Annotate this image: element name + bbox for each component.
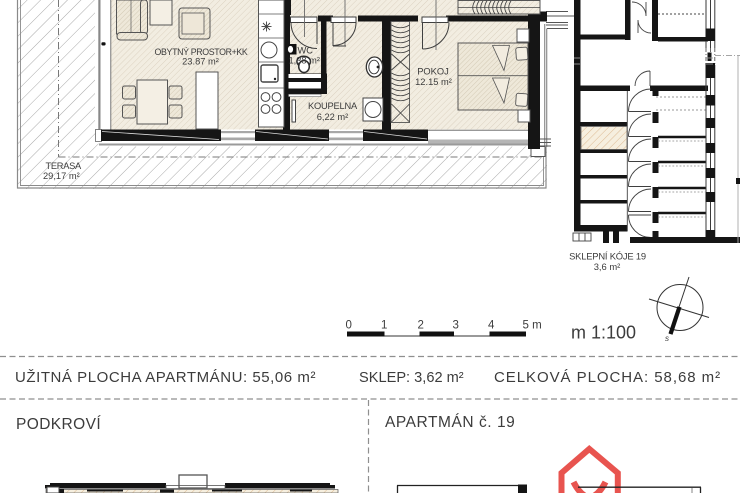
svg-text:POKOJ: POKOJ <box>417 67 449 77</box>
svg-text:4: 4 <box>488 320 495 332</box>
svg-text:s: s <box>665 334 669 343</box>
svg-text:1: 1 <box>381 320 387 332</box>
svg-text:1,38 m²: 1,38 m² <box>289 55 321 65</box>
svg-text:6,22 m²: 6,22 m² <box>317 112 349 122</box>
svg-text:3,6 m²: 3,6 m² <box>594 261 621 272</box>
svg-text:23.87 m²: 23.87 m² <box>182 57 219 67</box>
svg-text:m 1:100: m 1:100 <box>571 323 636 343</box>
svg-text:CELKOVÁ PLOCHA: 58,68 m²: CELKOVÁ PLOCHA: 58,68 m² <box>494 369 721 386</box>
svg-text:2: 2 <box>418 320 424 332</box>
svg-text:29,17 m²: 29,17 m² <box>43 171 80 181</box>
svg-text:3: 3 <box>453 320 459 332</box>
svg-text:WC: WC <box>298 45 314 55</box>
svg-text:SKLEPNÍ KÓJE 19: SKLEPNÍ KÓJE 19 <box>569 251 646 262</box>
svg-text:12.15 m²: 12.15 m² <box>415 77 452 87</box>
svg-text:OBYTNÝ PROSTOR+KK: OBYTNÝ PROSTOR+KK <box>155 47 248 57</box>
svg-text:APARTMÁN č. 19: APARTMÁN č. 19 <box>385 414 515 431</box>
svg-text:0: 0 <box>346 320 352 332</box>
svg-text:PODKROVÍ: PODKROVÍ <box>16 416 101 433</box>
svg-text:5 m: 5 m <box>523 320 542 332</box>
svg-text:UŽITNÁ PLOCHA APARTMÁNU: 55,06: UŽITNÁ PLOCHA APARTMÁNU: 55,06 m² <box>15 369 316 386</box>
svg-text:KOUPELNA: KOUPELNA <box>308 101 358 111</box>
svg-text:SKLEP: 3,62 m²: SKLEP: 3,62 m² <box>359 370 464 386</box>
svg-text:TERASA: TERASA <box>46 161 82 171</box>
